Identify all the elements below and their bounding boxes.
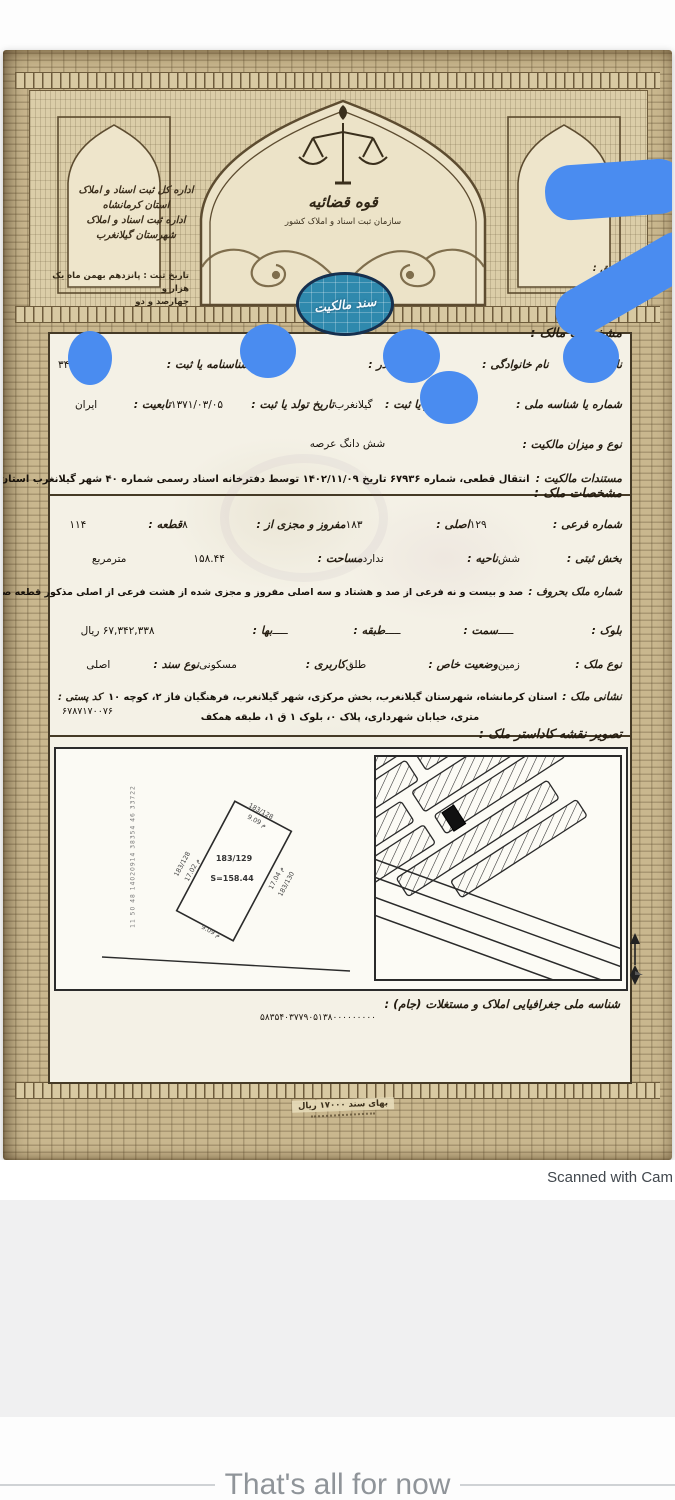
- field-value: ۱۳۷۱/۰۳/۰۵: [171, 399, 223, 411]
- ownership-type-row: نوع و میزان مالکیت : شش دانگ عرصه: [58, 438, 622, 451]
- field-sub-plot: شماره فرعی : ۱۲۹: [470, 518, 622, 531]
- next-item-placeholder: [0, 1200, 675, 1417]
- field-value: زمین: [498, 659, 520, 671]
- field-value: ۶۷,۳۴۲,۳۳۸ ریال: [81, 625, 155, 637]
- field-property-type: نوع ملک : زمین: [498, 658, 622, 671]
- field-label: نوع ملک :: [575, 658, 622, 671]
- field-floor: طبقه : ـــــ: [272, 624, 385, 637]
- field-label: نوع سند :: [153, 658, 199, 671]
- field-deed-type: نوع سند : اصلی: [86, 658, 199, 671]
- field-value: صد و بیست و نه فرعی از صد و هشتاد و سه ا…: [3, 587, 523, 598]
- property-row-5: نوع ملک : زمین وضعیت خاص : طلق کاربری : …: [58, 658, 622, 671]
- field-zone: ناحیه : ندارد: [363, 552, 498, 565]
- field-price: بها : ۶۷,۳۴۲,۳۳۸ ریال: [81, 624, 273, 637]
- cadastre-map-section-title: تصویر نقشه کاداستر ملک :: [477, 726, 624, 741]
- property-section-title: مشخصات ملک :: [532, 485, 624, 500]
- ornament-dash-band-top: [15, 72, 660, 89]
- address-line-1: استان کرمانشاه، شهرستان گیلانغرب، بخش مر…: [102, 692, 557, 703]
- field-land-use: کاربری : مسکونی: [199, 658, 346, 671]
- field-value: ایران: [75, 399, 97, 411]
- field-label: سمت :: [463, 624, 498, 637]
- deed-photo[interactable]: قوه قضائیه سازمان ثبت اسناد و املاک کشور…: [3, 50, 672, 1160]
- postal-code-label: کد پستی :: [58, 692, 102, 703]
- field-value: ۸: [182, 519, 188, 531]
- footer-signature-squiggle: [311, 1112, 375, 1117]
- field-value: شش دانگ عرصه: [310, 438, 385, 450]
- field-label: شماره یا شناسه ملی :: [516, 398, 622, 411]
- feed-end-marker: That's all for now: [0, 1468, 675, 1500]
- deed-form-card: مشخصات مالک : نام : نام خانوادگی : نام پ…: [48, 332, 632, 1084]
- field-label: طبقه :: [353, 624, 385, 637]
- field-national-id: شماره یا شناسه ملی :: [475, 398, 622, 411]
- redaction-mark: [563, 331, 619, 383]
- postal-code-value: ۶۷۸۷۱۷۰۰۷۶: [62, 706, 113, 717]
- field-label: وضعیت خاص :: [428, 658, 498, 671]
- parcel-area-label: S=158.44: [210, 874, 254, 883]
- redaction-mark: [420, 371, 478, 424]
- owner-row-2: شماره یا شناسه ملی : محل صدور یا ثبت : گ…: [58, 398, 622, 411]
- registration-date-line2: چهارصد و دو: [39, 296, 189, 309]
- field-value: ۱۱۴: [69, 519, 86, 531]
- field-label: بلوک :: [592, 624, 622, 637]
- jam-id-value: ۵۸۳۵۴۰۳۷۷۹۰۵۱۳۸۰۰۰۰۰۰۰۰۰: [260, 1013, 376, 1023]
- address-row-2: متری، خیابان شهرداری، پلاک ۰، بلوک ۱ ق ۱…: [58, 712, 622, 723]
- judiciary-title: قوه قضائیه: [308, 193, 378, 211]
- field-value: اصلی: [86, 659, 110, 671]
- field-piece: قطعه : ۱۱۴: [69, 518, 182, 531]
- compass-icon: [622, 931, 648, 987]
- field-value: طلق: [346, 659, 367, 671]
- redaction-mark: [68, 331, 112, 385]
- parcel-number-label: 183/129: [216, 854, 253, 863]
- address-row: نشانی ملک : استان کرمانشاه، شهرستان گیلا…: [58, 690, 622, 703]
- owner-row-1: نام : نام خانوادگی : نام پدر : شماره شنا…: [58, 358, 622, 371]
- field-label: نام خانوادگی :: [482, 358, 549, 371]
- org-subtitle: سازمان ثبت اسناد و املاک کشور: [284, 217, 401, 227]
- field-label: نشانی ملک :: [562, 690, 622, 703]
- cadastre-map-frame: 11 50 48 14020914 38354 46 33722 183/129…: [54, 747, 628, 991]
- divider-line: [0, 1484, 215, 1486]
- deed-price-note: بهای سند ۱۷۰۰۰ ریال: [292, 1097, 394, 1113]
- field-value: ـــــ: [272, 625, 287, 637]
- field-special-status: وضعیت خاص : طلق: [346, 658, 498, 671]
- field-label: نوع و میزان مالکیت :: [522, 438, 622, 451]
- plot-in-words-row: شماره ملک بحروف : صد و بیست و نه فرعی از…: [58, 586, 622, 598]
- field-label: اصلی :: [436, 518, 469, 531]
- field-birth-date: تاریخ تولد یا ثبت : ۱۳۷۱/۰۳/۰۵: [171, 398, 335, 411]
- ownership-seal: سند مالکیت: [296, 272, 394, 336]
- field-label: تابعیت :: [134, 398, 171, 411]
- feed-end-text: That's all for now: [225, 1468, 451, 1500]
- office-line: اداره ثبت اسناد و املاک: [70, 213, 202, 228]
- ownership-seal-text: سند مالکیت: [313, 293, 377, 314]
- field-value: مسکونی: [199, 659, 237, 671]
- city-block-map-graphic: [374, 755, 622, 981]
- field-label: بها :: [253, 624, 273, 637]
- redaction-mark: [240, 324, 296, 378]
- field-label: شماره ملک بحروف :: [528, 586, 622, 598]
- field-label: کاربری :: [306, 658, 346, 671]
- divider-line: [460, 1484, 675, 1486]
- field-label: شماره فرعی :: [553, 518, 622, 531]
- field-label: تاریخ تولد یا ثبت :: [251, 398, 334, 411]
- field-label: بخش ثبتی :: [567, 552, 622, 565]
- field-area-unit: مترمربع: [92, 553, 194, 565]
- address-line-2: متری، خیابان شهرداری، پلاک ۰، بلوک ۱ ق ۱…: [201, 712, 479, 723]
- field-value: شش: [498, 553, 520, 565]
- feed-screen: قوه قضائیه سازمان ثبت اسناد و املاک کشور…: [0, 0, 675, 1500]
- field-value: ـــــ: [385, 625, 400, 637]
- field-label: ناحیه :: [467, 552, 498, 565]
- scan-caption: Scanned with Cam: [547, 1169, 673, 1186]
- redaction-mark: [543, 157, 672, 222]
- office-line: اداره کل ثبت اسناد و املاک: [70, 183, 202, 198]
- jam-id-label: شناسه ملی جغرافیایی املاک و مستغلات (جام…: [385, 997, 620, 1011]
- field-label: مستندات مالکیت :: [536, 472, 622, 485]
- field-value: ۱۲۹: [470, 519, 487, 531]
- field-registry-district: بخش ثبتی : شش: [498, 552, 622, 565]
- field-value: گیلانغرب: [334, 399, 372, 411]
- property-row-4: بلوک : ـــــ سمت : ـــــ طبقه : ـــــ به…: [58, 624, 622, 637]
- field-nationality: تابعیت : ایران: [75, 398, 171, 411]
- field-value: ۱۵۸.۴۴: [193, 553, 225, 565]
- office-line: استان کرمانشاه: [70, 198, 202, 213]
- registration-date-label: تاریخ ثبت :: [143, 271, 189, 281]
- field-value: ـــــ: [498, 625, 513, 637]
- registration-date: تاریخ ثبت : پانزدهم بهمن ماه یک هزار و چ…: [39, 270, 189, 309]
- stamp-watermark: [220, 454, 388, 582]
- field-value: مترمربع: [92, 553, 127, 565]
- scan-caption-strip: Scanned with Cam: [0, 1160, 675, 1200]
- field-side: سمت : ـــــ: [385, 624, 498, 637]
- parcel-sketch-graphic: 183/129 S=158.44 183/128 17.02 م 183/128…: [84, 769, 364, 979]
- field-label: قطعه :: [148, 518, 182, 531]
- office-line: شهرستان گیلانغرب: [70, 228, 202, 243]
- deed-footer-note: بهای سند ۱۷۰۰۰ ریال: [283, 1092, 403, 1116]
- field-block: بلوک : ـــــ: [498, 624, 622, 637]
- registry-office-box: اداره کل ثبت اسناد و املاک استان کرمانشا…: [70, 183, 202, 243]
